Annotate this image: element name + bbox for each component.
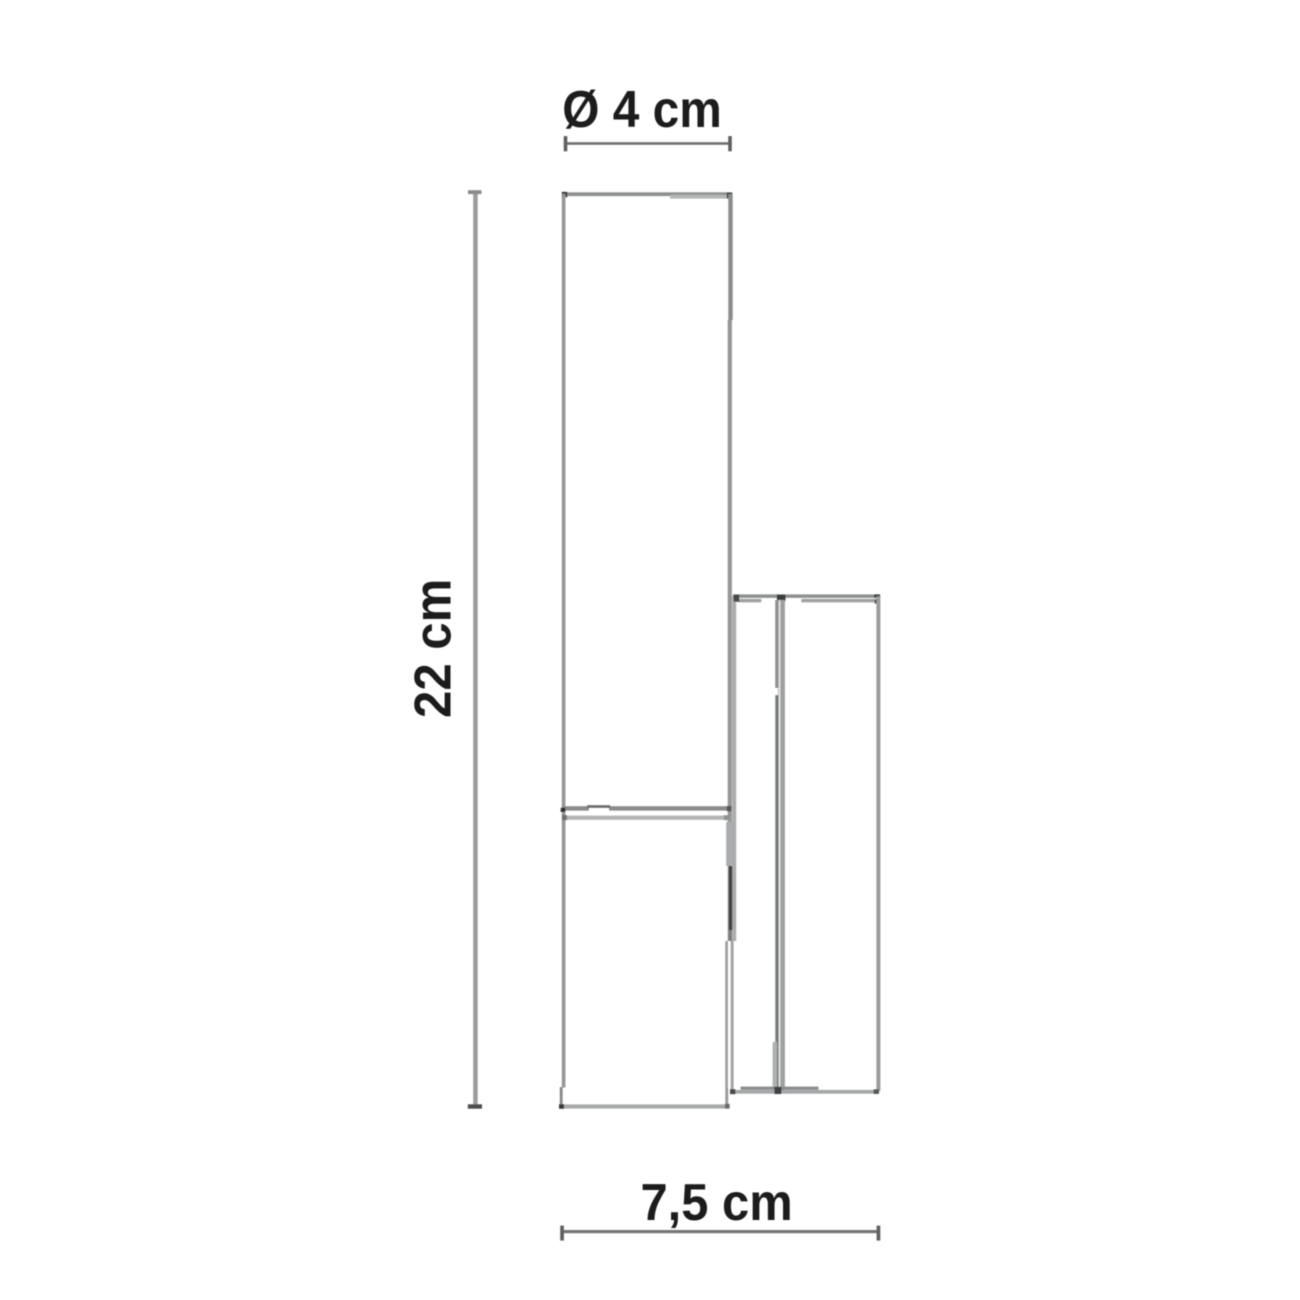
svg-text:22 cm: 22 cm bbox=[403, 579, 462, 718]
svg-text:Ø 4 cm: Ø 4 cm bbox=[562, 80, 722, 138]
svg-text:7,5 cm: 7,5 cm bbox=[641, 1173, 793, 1232]
